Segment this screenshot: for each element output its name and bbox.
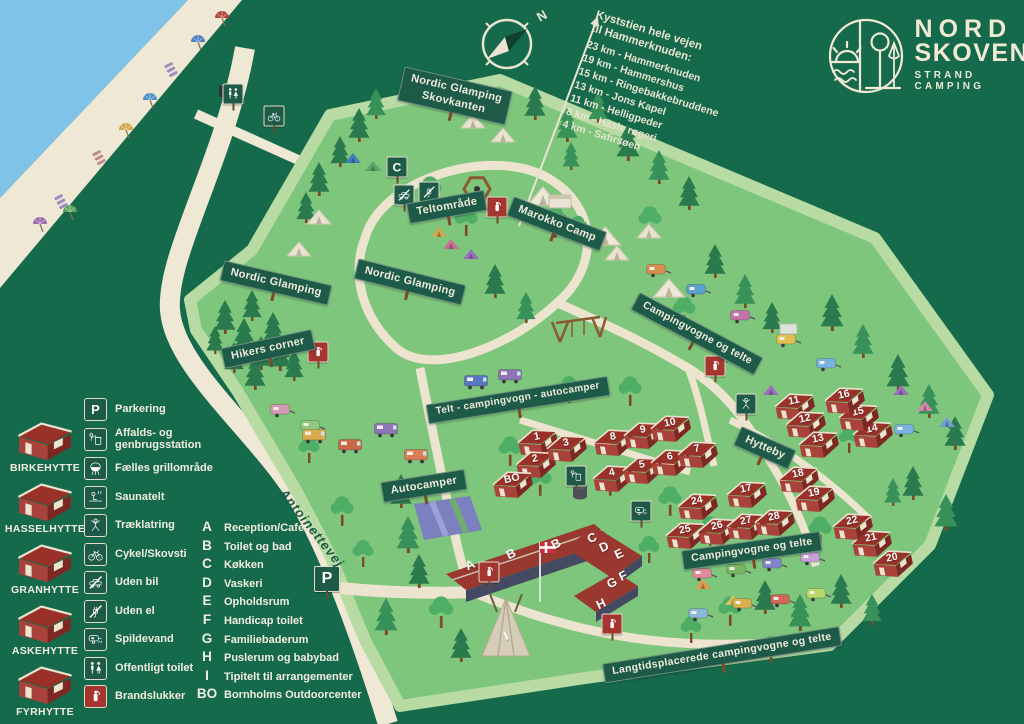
waste-station-icon [573,483,587,500]
map-backdrop: N [0,0,1024,724]
nordskoven-camping-map: N [0,0,1024,724]
